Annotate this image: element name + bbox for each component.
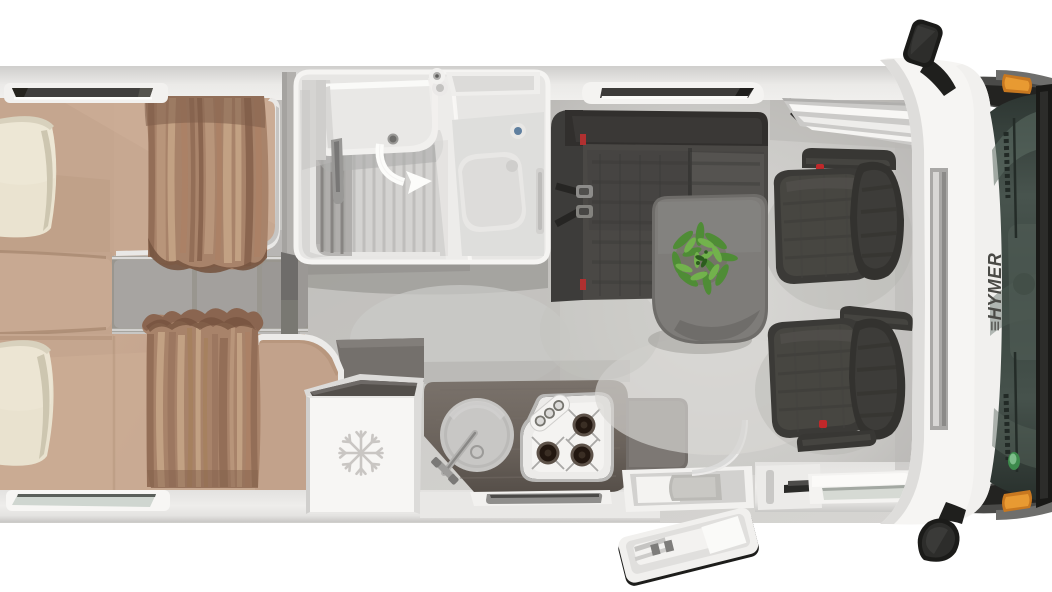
svg-text:≡HYMER: ≡HYMER (985, 253, 1005, 332)
